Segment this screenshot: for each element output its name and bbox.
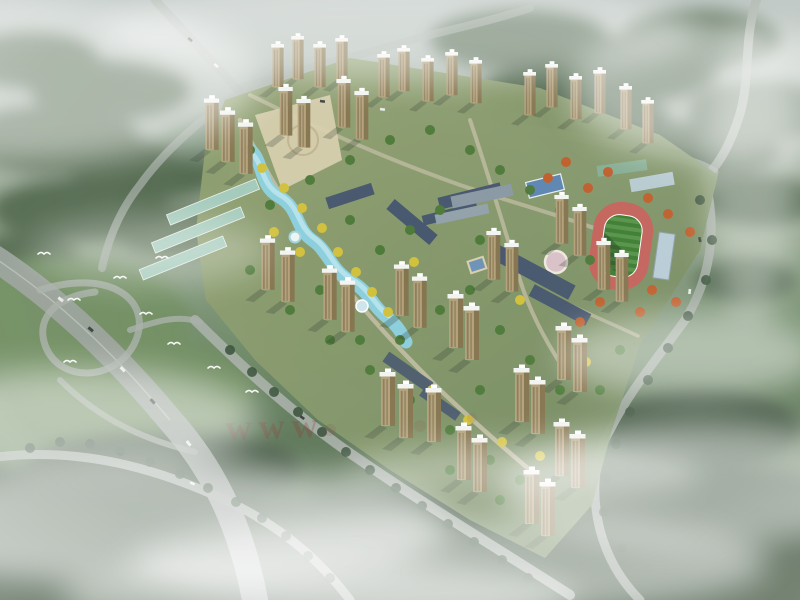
fog-vignette (0, 0, 800, 600)
rendering-canvas: www (0, 0, 800, 600)
aerial-rendering: www (0, 0, 800, 600)
